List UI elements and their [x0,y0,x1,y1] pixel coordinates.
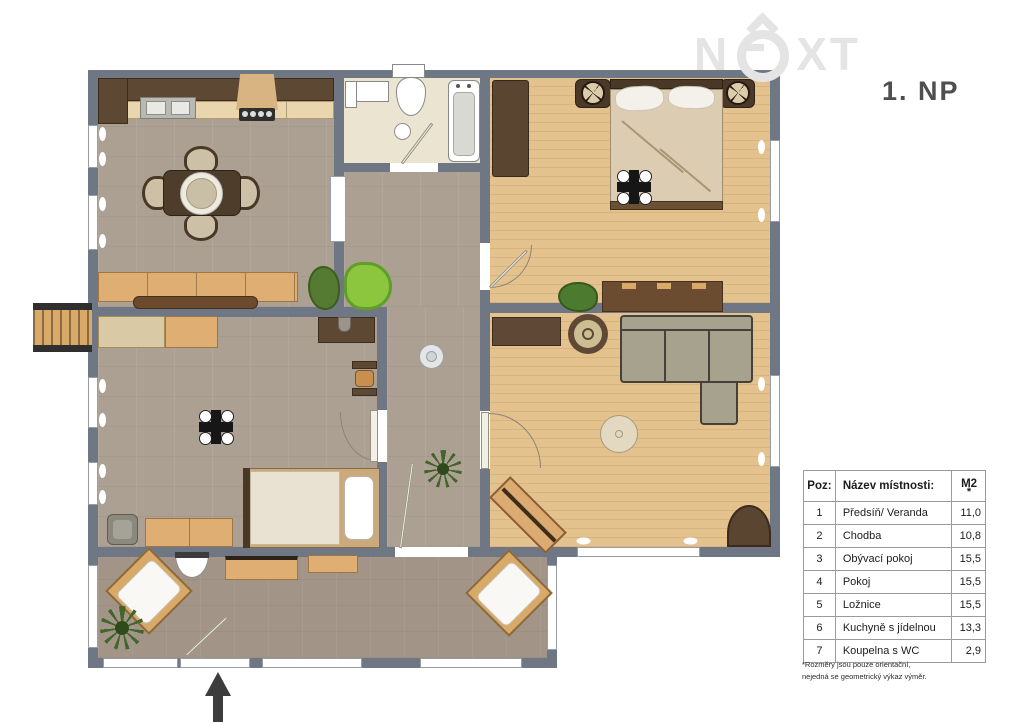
curtain-mark [99,379,106,393]
icon-seat [199,410,212,423]
curtain-mark [99,234,106,248]
entrance-arrow-head [205,672,231,696]
coffee-table-center [615,430,623,438]
row-area: 13,3 [952,617,986,640]
window [88,377,98,428]
curtain-mark [99,127,106,141]
row-poz: 3 [804,548,836,571]
window [770,375,780,467]
icon-seat [199,432,212,445]
entrance-arrow-stem [213,695,223,722]
wall-hall-east [480,78,490,547]
logo-e-bar [744,44,764,51]
window [103,658,178,668]
veranda-cabinet [308,555,358,573]
door-bathroom [390,163,438,172]
kitchen-sink-basin [146,101,166,115]
floor-drain-inner [426,351,437,362]
table-row: 2 Chodba 10,8 [804,525,986,548]
row-poz: 4 [804,571,836,594]
door-leaf [481,412,489,469]
wall-top [88,70,780,78]
row-area: 15,5 [952,594,986,617]
bed-pillow [668,85,716,110]
icon-seat [221,410,234,423]
wardrobe [492,80,529,177]
door-leaf [370,410,378,462]
dresser-handle [692,283,706,289]
sliding-door-kitchen [330,176,346,242]
row-poz: 6 [804,617,836,640]
footnote-line1: *Rozměry jsou pouze orientační, [802,659,927,671]
row-poz: 2 [804,525,836,548]
curtain-mark [577,538,591,545]
stove-burner [258,111,264,117]
row-name: Obývací pokoj [835,548,951,571]
row-name: Ložnice [835,594,951,617]
desk-return [165,316,218,348]
wall-desk-shelf [352,388,377,396]
window [88,565,98,648]
bathtub-faucet [456,84,460,88]
toilet-tank [392,64,425,78]
bath-sink-column [345,81,357,108]
sofa [620,315,753,383]
dining-chair [184,214,218,241]
room-legend-table: Poz: Název místnosti: M2 * 1 Předsíň/ Ve… [803,470,986,663]
table-with-chairs-icon [199,410,233,444]
row-area: 2,9 [952,640,986,663]
door-entrance [180,658,250,668]
dining-chair [184,146,218,173]
logo-letter-n: N [694,27,730,81]
floorplan-page: N XT 1. NP Poz: Název místnosti: M2 * 1 … [0,0,1024,724]
row-poz: 5 [804,594,836,617]
row-area: 15,5 [952,571,986,594]
curtain-mark [99,413,106,427]
window [577,547,700,557]
curtain-mark [684,538,698,545]
icon-seat [617,170,630,183]
kitchen-counter [98,101,334,119]
icon-seat [639,192,652,205]
row-poz: 1 [804,502,836,525]
curtain-mark [99,152,106,166]
plant-spiky-center [115,621,129,635]
sofa-seat-line [708,331,710,381]
window [88,125,98,168]
curtain-mark [99,197,106,211]
row-area: 10,8 [952,525,986,548]
table-row: 3 Obývací pokoj 15,5 [804,548,986,571]
window [88,195,98,250]
single-bed-pillow [344,476,374,540]
row-name: Pokoj [835,571,951,594]
curtain-mark [758,208,765,222]
stove-burner [242,111,248,117]
cooker-hood [236,74,278,110]
washbasin-rim [175,552,209,558]
window [770,140,780,222]
dining-table-center-inner [186,178,217,209]
table-with-chairs-icon [617,170,651,204]
dresser-handle [657,283,671,289]
window [420,658,522,668]
curtain-mark [99,490,106,504]
kitchen-corner-cabinet [98,78,128,124]
kitchen-sink-basin [171,101,190,115]
plant-spiky-center [437,463,449,475]
bench [145,518,233,547]
curtain-mark [758,452,765,466]
legend-header-poz: Poz: [804,471,836,502]
bath-drain [394,123,411,140]
round-rug-center [582,328,594,340]
table-row: 1 Předsíň/ Veranda 11,0 [804,502,986,525]
sofa-back-line [622,329,751,331]
wall-desk-shelf [352,361,377,369]
icon-seat [221,432,234,445]
sideboard [492,317,561,346]
icon-seat [617,192,630,205]
row-name: Chodba [835,525,951,548]
plant-large [344,262,392,310]
floor-label: 1. NP [882,76,960,107]
cabinet-notch [338,317,351,332]
table-row: 6 Kuchyně s jídelnou 13,3 [804,617,986,640]
plant [558,282,598,312]
door-veranda [395,547,468,557]
legend-header-area: M2 * [952,471,986,502]
sofa-seat-line [664,331,666,381]
legend-footnote: *Rozměry jsou pouze orientační, nejedná … [802,659,927,682]
row-name: Kuchyně s jídelnou [835,617,951,640]
table-row: 4 Pokoj 15,5 [804,571,986,594]
icon-bar [199,422,233,432]
row-name: Předsíň/ Veranda [835,502,951,525]
logo-caret-icon [746,12,779,45]
logo-letters-xt: XT [796,27,861,81]
single-bed-foot [243,468,250,548]
logo-e-icon [737,30,789,82]
legend-header-row: Poz: Název místnosti: M2 * [804,471,986,502]
desk [98,316,165,348]
single-bed-blanket [250,471,340,545]
footnote-line2: nejedná se geometrický výkaz výměr. [802,671,927,683]
curtain-mark [758,377,765,391]
table-row: 5 Ložnice 15,5 [804,594,986,617]
curtain-mark [99,464,106,478]
curtain-mark [758,140,765,154]
nightstand-decor-icon [581,81,605,105]
door-bedroom [480,243,490,290]
room-hallway-lower [387,307,480,547]
window [547,565,557,650]
door-pokoj [377,410,387,462]
bathtub-faucet [467,84,471,88]
plant [308,266,340,310]
nightstand-decor-icon [726,81,750,105]
stove-burner [266,111,272,117]
legend-area-note-symbol: * [955,490,983,494]
kitchen-upper-cabinets [98,78,334,101]
icon-seat [639,170,652,183]
window [88,462,98,505]
stool-top [113,520,132,539]
next-logo: N XT [694,26,861,82]
legend-header-name: Název místnosti: [835,471,951,502]
icon-bar [617,182,651,192]
exterior-stairs [33,303,92,352]
row-area: 11,0 [952,502,986,525]
row-area: 15,5 [952,548,986,571]
desk-chair [355,370,374,387]
stove-burner [250,111,256,117]
veranda-cabinet [225,556,298,580]
dresser-handle [622,283,636,289]
bathtub-inner [453,92,475,156]
window [262,658,362,668]
sofa-chaise [700,383,738,425]
kitchen-bench [133,296,258,309]
